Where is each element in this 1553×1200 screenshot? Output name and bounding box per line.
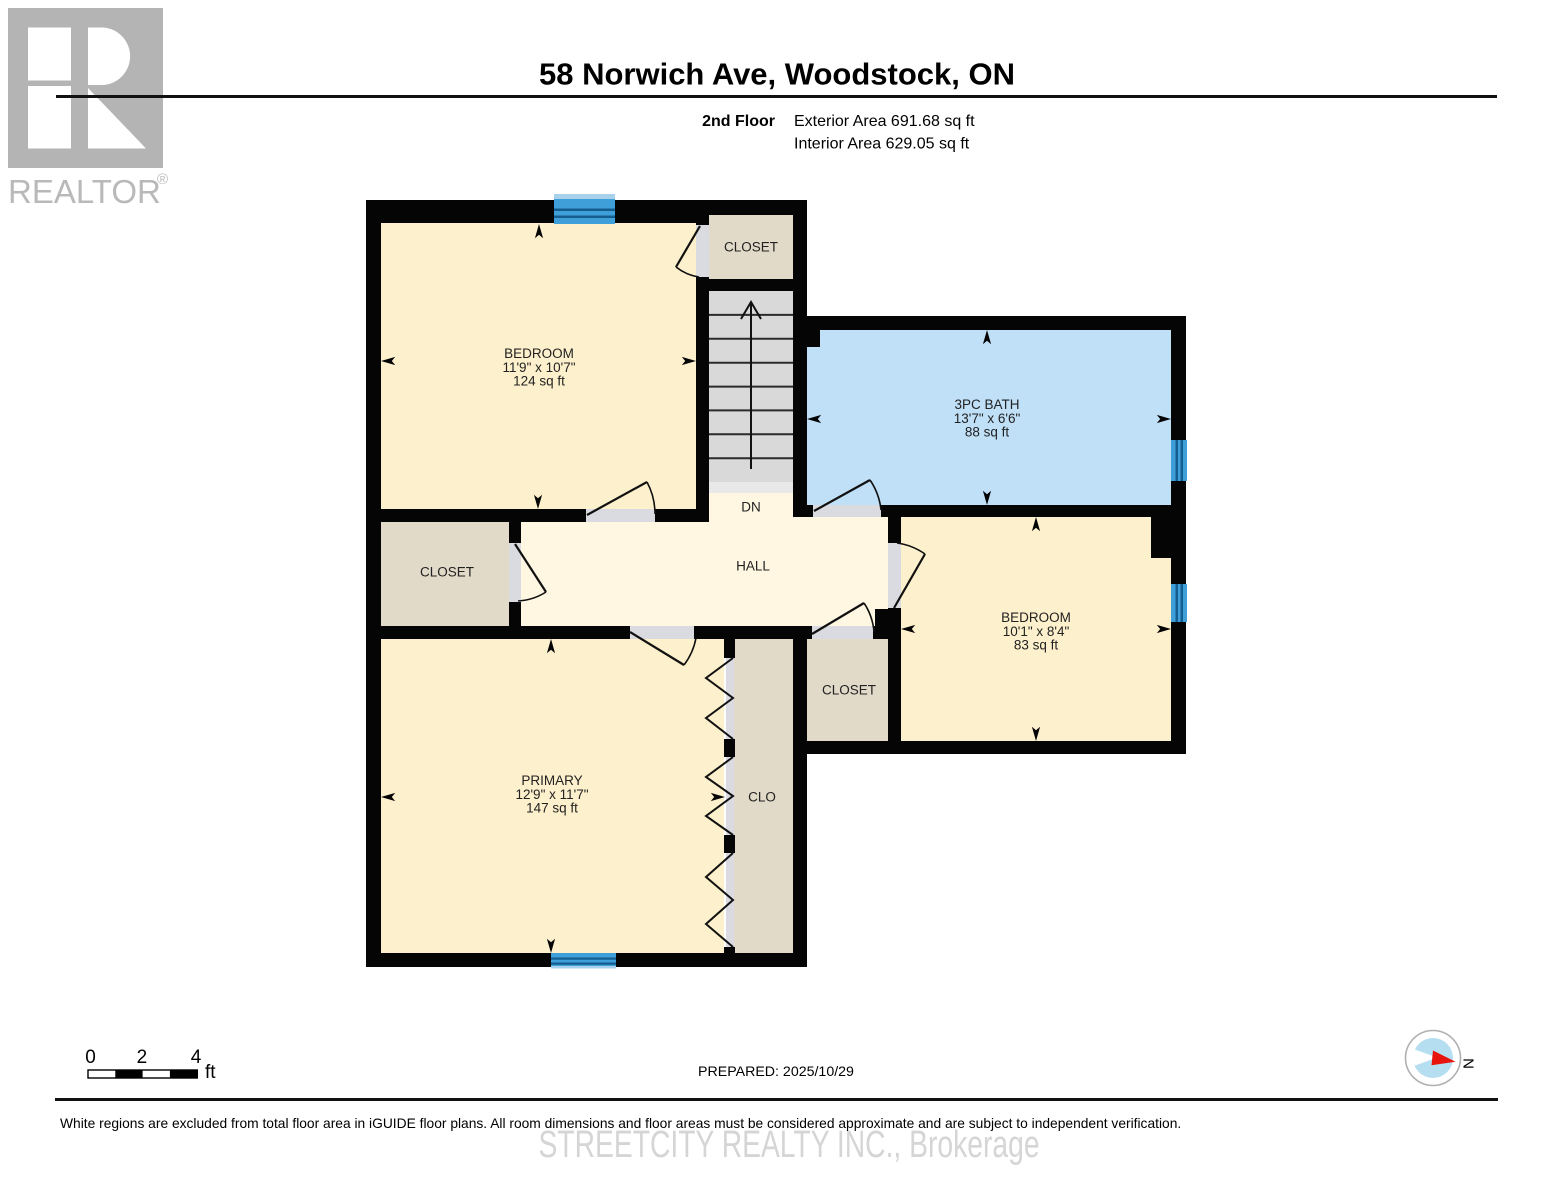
svg-text:58 Norwich Ave, Woodstock, ON: 58 Norwich Ave, Woodstock, ON: [539, 57, 1015, 92]
svg-text:PRIMARY: PRIMARY: [521, 773, 582, 788]
svg-text:PREPARED: 2025/10/29: PREPARED: 2025/10/29: [698, 1064, 854, 1080]
svg-text:Exterior Area 691.68 sq ft: Exterior Area 691.68 sq ft: [794, 113, 975, 130]
svg-text:White regions are excluded fro: White regions are excluded from total fl…: [60, 1116, 1181, 1131]
svg-text:REALTOR: REALTOR: [8, 173, 161, 210]
svg-text:0: 0: [85, 1047, 96, 1068]
svg-text:Interior Area 629.05 sq ft: Interior Area 629.05 sq ft: [794, 136, 970, 153]
svg-text:4: 4: [191, 1047, 202, 1068]
svg-text:2: 2: [137, 1047, 148, 1068]
svg-text:3PC BATH: 3PC BATH: [954, 397, 1019, 412]
svg-text:HALL: HALL: [736, 559, 770, 574]
svg-text:BEDROOM: BEDROOM: [1001, 610, 1071, 625]
svg-text:2nd Floor: 2nd Floor: [702, 113, 775, 130]
svg-text:BEDROOM: BEDROOM: [504, 346, 574, 361]
svg-text:88 sq ft: 88 sq ft: [965, 425, 1010, 440]
svg-text:124 sq ft: 124 sq ft: [513, 374, 565, 389]
svg-text:CLO: CLO: [748, 790, 776, 805]
svg-text:ft: ft: [205, 1062, 216, 1083]
svg-text:CLOSET: CLOSET: [724, 240, 778, 255]
svg-text:147 sq ft: 147 sq ft: [526, 801, 578, 816]
svg-text:N: N: [1460, 1058, 1477, 1069]
svg-text:83 sq ft: 83 sq ft: [1014, 638, 1059, 653]
svg-text:CLOSET: CLOSET: [420, 565, 474, 580]
svg-text:®: ®: [157, 171, 168, 188]
svg-text:DN: DN: [741, 500, 761, 515]
svg-text:CLOSET: CLOSET: [822, 683, 876, 698]
